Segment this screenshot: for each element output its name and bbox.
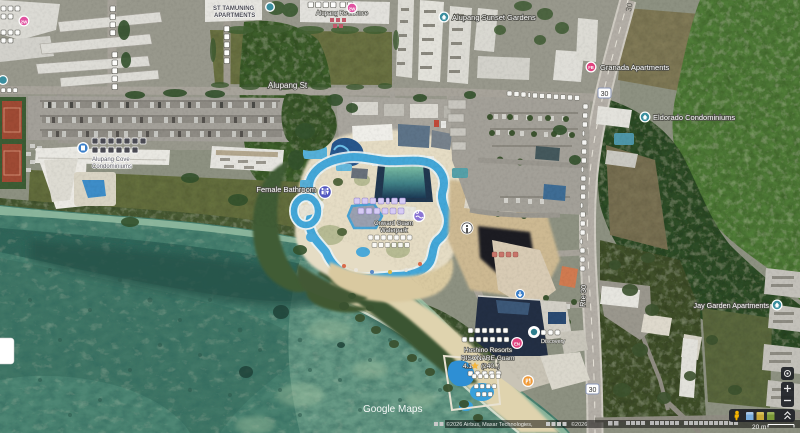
svg-text:2W: 2W — [349, 6, 357, 11]
svg-text:EN: EN — [514, 341, 520, 346]
svg-text:Discovery: Discovery — [541, 339, 565, 345]
svg-text:Jay Garden Apartments: Jay Garden Apartments — [693, 301, 769, 310]
svg-text:©2026 Airbus, Maxar Technolog: ©2026 Airbus, Maxar Technologies, — [446, 421, 533, 428]
svg-text:Waterpark: Waterpark — [380, 228, 408, 234]
svg-text:Alupang Sunset Gardens: Alupang Sunset Gardens — [452, 13, 536, 22]
svg-text:APARTMENTS: APARTMENTS — [214, 13, 255, 19]
svg-text:30: 30 — [589, 387, 597, 394]
svg-text:Alupang Cove: Alupang Cove — [92, 157, 130, 163]
svg-text:20 m: 20 m — [752, 424, 766, 431]
svg-text:Condominiums: Condominiums — [92, 164, 132, 170]
svg-text:30: 30 — [601, 91, 609, 98]
svg-text:Hoshino Resorts: Hoshino Resorts — [464, 347, 513, 354]
svg-text:4.1: 4.1 — [463, 363, 472, 370]
svg-text:Alupang Residence: Alupang Residence — [316, 11, 369, 17]
svg-text:(240..): (240..) — [481, 363, 500, 370]
svg-text:Google Maps: Google Maps — [363, 404, 422, 415]
svg-text:Female Bathroom: Female Bathroom — [256, 185, 316, 194]
svg-text:©2026: ©2026 — [571, 421, 587, 428]
svg-text:Eldorado Condominiums: Eldorado Condominiums — [653, 113, 735, 122]
svg-text:2W: 2W — [21, 19, 29, 24]
svg-text:Granada Apartments: Granada Apartments — [600, 63, 669, 72]
svg-text:Rte 30: Rte 30 — [578, 285, 588, 308]
svg-text:RISONARE Guam: RISONARE Guam — [461, 355, 514, 362]
svg-text:ST TAMUNING: ST TAMUNING — [213, 6, 255, 12]
svg-text:Onward Guam: Onward Guam — [374, 221, 413, 227]
svg-text:Alupang St: Alupang St — [268, 81, 308, 90]
svg-text:FB: FB — [588, 65, 594, 70]
